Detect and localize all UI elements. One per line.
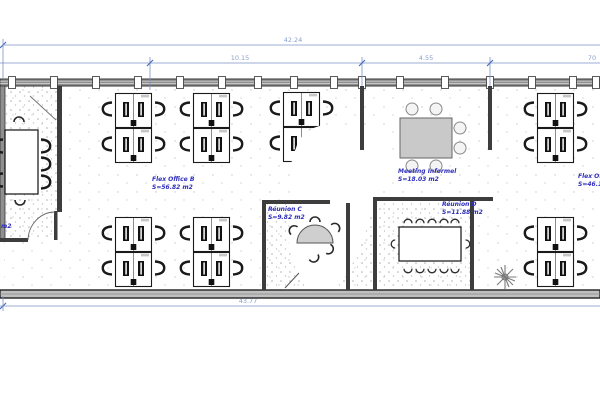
- chair-icon: [406, 103, 418, 115]
- room-label-meeting-informel: Meeting Informel: [398, 168, 457, 175]
- left-room-right-wall: [57, 86, 62, 212]
- room-area-meeting-informel: S=18.03 m2: [398, 176, 439, 183]
- conference-table: [5, 130, 38, 194]
- partition-wall: [360, 86, 364, 150]
- room-label-flex-office-b: Flex Office B: [152, 176, 195, 183]
- bottom-exterior-wall: [0, 290, 600, 298]
- desk-unit: [284, 93, 320, 127]
- floorplan-drawing: Flex Office B S=56.82 m2 Meeting Informe…: [0, 0, 600, 420]
- room-label-reunion-c: Réunion C: [268, 206, 302, 213]
- dim-bottom-total: 43.77: [239, 297, 258, 305]
- left-exterior-wall: [0, 86, 5, 240]
- meeting-table: [399, 227, 461, 261]
- room-area-reunion-d: S=11.88 m2: [442, 209, 483, 216]
- dim-segment-2: 4.55: [419, 54, 433, 62]
- room-area-flex-office-right: S=46.1: [578, 181, 600, 188]
- chair-icon: [454, 122, 466, 134]
- dim-top-total: 42.24: [284, 36, 303, 44]
- chair-icon: [454, 142, 466, 154]
- room-label-reunion-d: Réunion D: [442, 201, 476, 208]
- room-label-flex-office-right: Flex Offi: [578, 173, 600, 180]
- room-area-fragment-left: m2: [1, 223, 11, 230]
- room-area-reunion-c: S=9.82 m2: [268, 214, 305, 221]
- room-area-flex-office-b: S=56.82 m2: [152, 184, 193, 191]
- meeting-table: [400, 118, 452, 158]
- left-room-bottom-wall: [0, 238, 28, 242]
- floorplan-canvas[interactable]: Flex Office B S=56.82 m2 Meeting Informe…: [0, 0, 600, 420]
- dim-segment-1: 10.15: [231, 54, 250, 62]
- dim-segment-3: 70: [588, 54, 596, 62]
- partition-wall: [488, 86, 492, 150]
- chair-icon: [430, 103, 442, 115]
